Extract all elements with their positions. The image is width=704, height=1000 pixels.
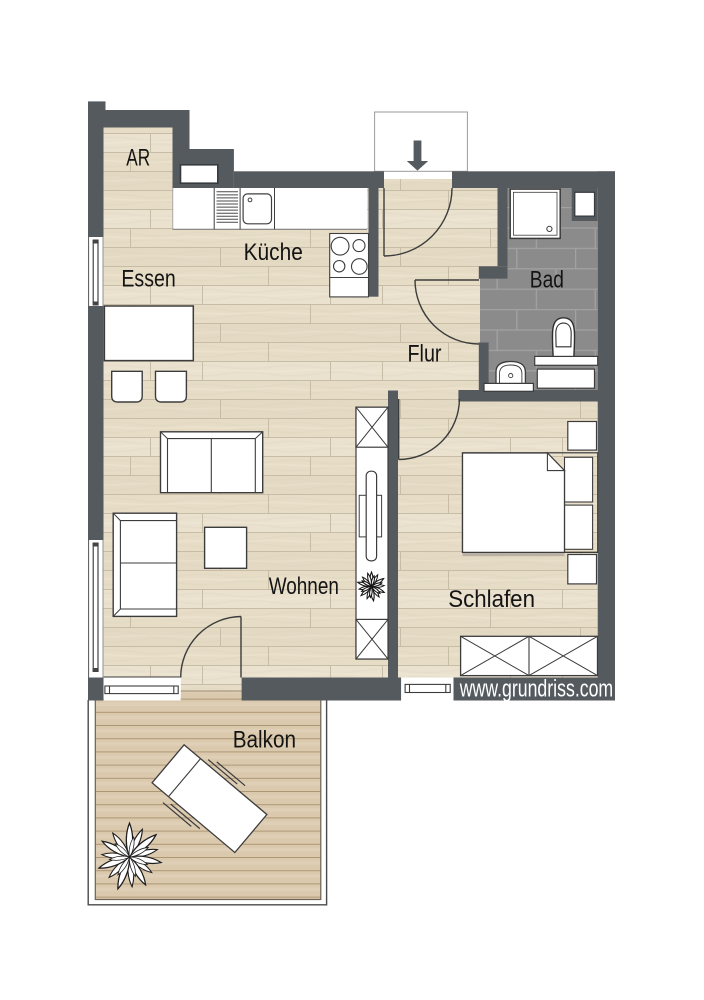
svg-text:www.grundriss.com: www.grundriss.com [459,675,613,702]
svg-text:AR: AR [126,145,150,172]
svg-text:Bad: Bad [530,267,564,294]
svg-text:Balkon: Balkon [233,726,296,753]
svg-text:Essen: Essen [121,266,175,293]
svg-text:Küche: Küche [244,239,303,266]
svg-text:Schlafen: Schlafen [448,586,535,613]
svg-text:Flur: Flur [408,340,442,367]
svg-text:Wohnen: Wohnen [269,573,339,600]
